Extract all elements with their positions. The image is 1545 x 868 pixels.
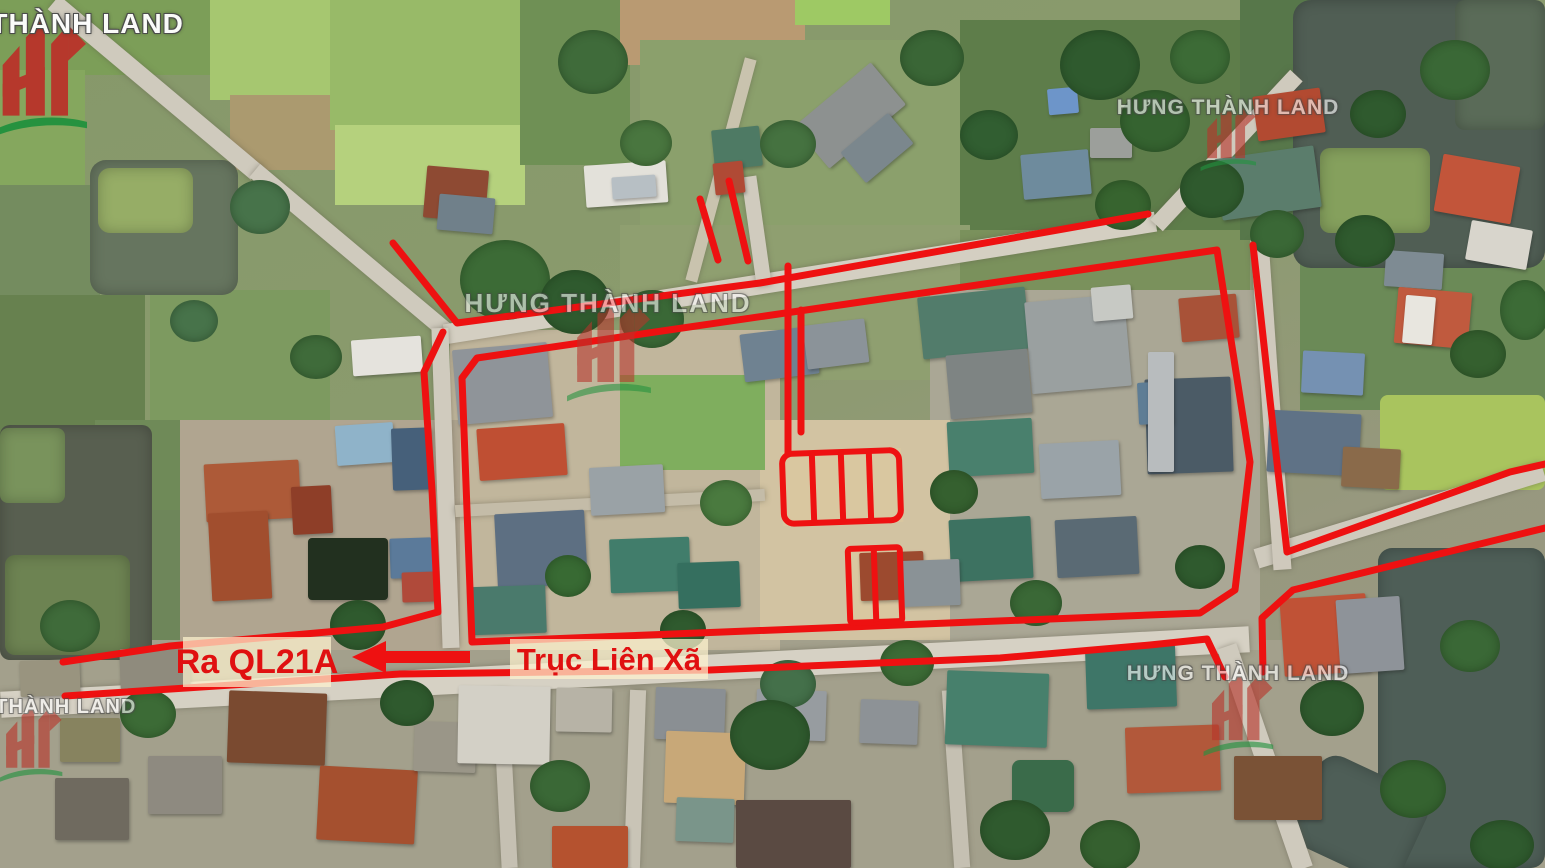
plot-group-lower [848,547,903,623]
road-annotation-overlay [0,0,1545,868]
land-plot-outlines [782,450,902,623]
direction-label: Ra QL21A [183,637,331,687]
road-name-label: Trục Liên Xã [510,639,708,679]
brand-watermark-text: HƯNG THÀNH LAND [0,696,136,719]
brand-watermark-text: HƯNG THÀNH LAND [465,288,752,319]
direction-arrow [352,641,470,673]
road-boundary-lines [63,181,1545,696]
aerial-map: Ra QL21A Trục Liên Xã HƯNG THÀNH LAND HƯ… [0,0,1545,868]
plot-group-upper [782,450,901,524]
brand-watermark-text: HƯNG THÀNH LAND [1117,96,1340,120]
brand-watermark-text: HƯNG THÀNH LAND [1127,662,1350,686]
brand-watermark-text: HƯNG THÀNH LAND [0,8,184,40]
